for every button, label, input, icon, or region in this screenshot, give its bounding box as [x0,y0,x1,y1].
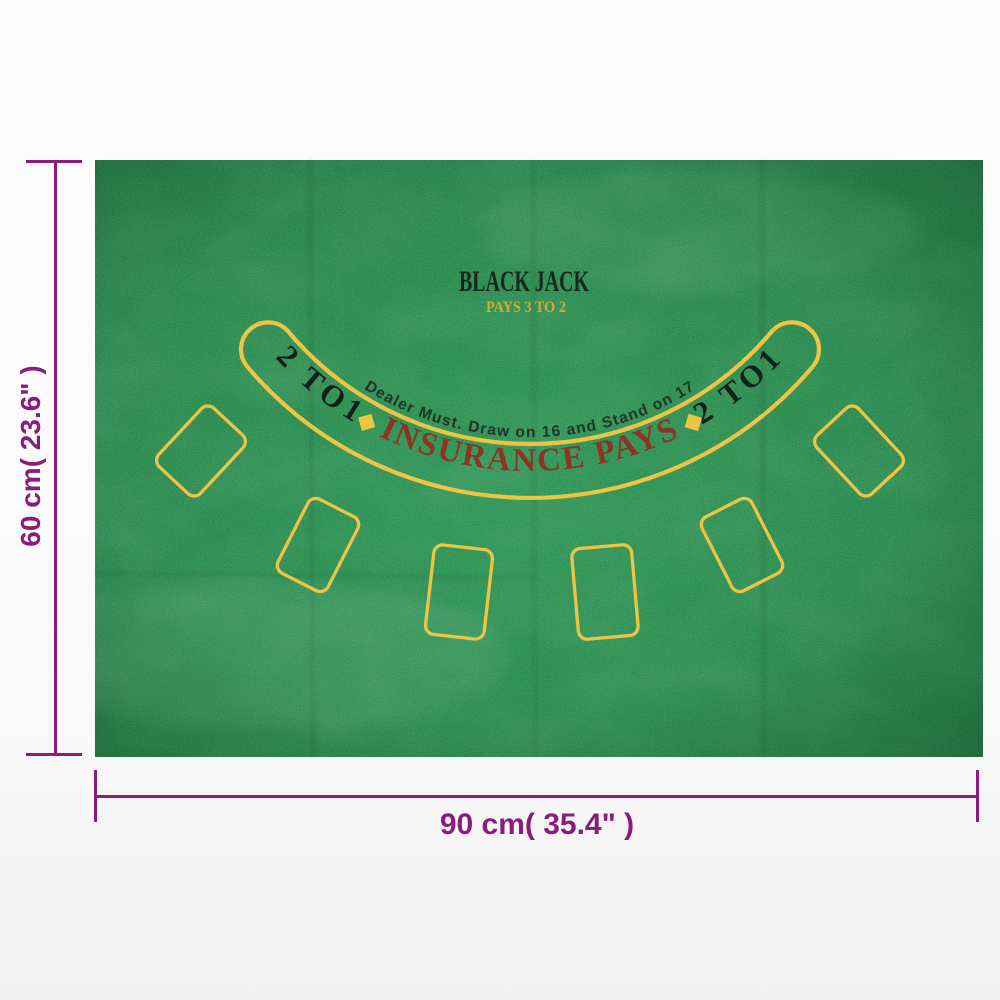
felt-mat: BLACK JACK PAYS 3 TO 2 Dealer Must. Draw… [10,160,983,757]
height-dimension-line [54,161,57,755]
height-dimension-cap-top [26,160,82,163]
height-dimension-label: 60 cm( 23.6" ) [15,306,47,606]
width-dimension-cap-left [94,770,97,822]
mat-title: BLACK JACK [459,265,589,298]
width-dimension-line [95,795,979,798]
width-dimension-label: 90 cm( 35.4" ) [337,808,737,842]
height-dimension-cap-bottom [26,753,82,756]
product-dimension-image: BLACK JACK PAYS 3 TO 2 Dealer Must. Draw… [0,0,1000,1000]
mat-subtitle: PAYS 3 TO 2 [486,299,566,316]
width-dimension-cap-right [976,770,979,822]
blackjack-mat-photo: BLACK JACK PAYS 3 TO 2 Dealer Must. Draw… [0,0,1000,1000]
